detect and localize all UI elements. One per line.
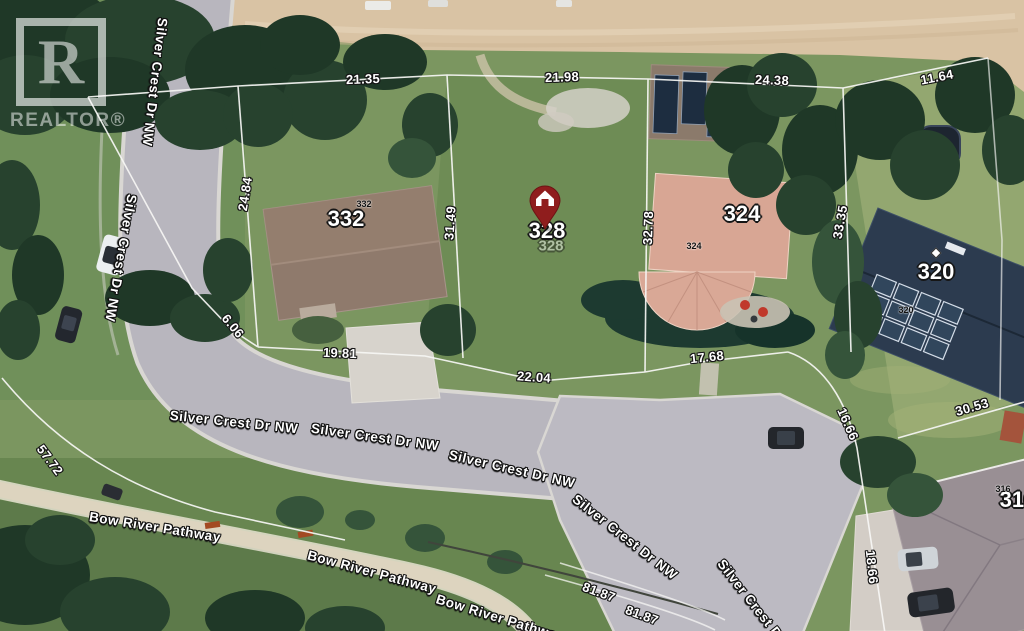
car-silver-316 [897, 546, 939, 571]
satellite-map-canvas[interactable]: 21.35 21.98 24.38 11.64 24.84 31.49 32.7… [0, 0, 1024, 631]
walkway-324 [699, 362, 719, 395]
realtor-logo-letter: R [38, 30, 84, 94]
realtor-logo-text: REALTOR® [10, 110, 126, 132]
realtor-logo-r: R [16, 18, 106, 106]
house-icon-door [542, 199, 549, 206]
car-suv-road [768, 427, 804, 449]
house-324-roof [639, 173, 793, 330]
realtor-watermark: R REALTOR® [16, 18, 126, 132]
aerial-imagery [0, 0, 1024, 631]
